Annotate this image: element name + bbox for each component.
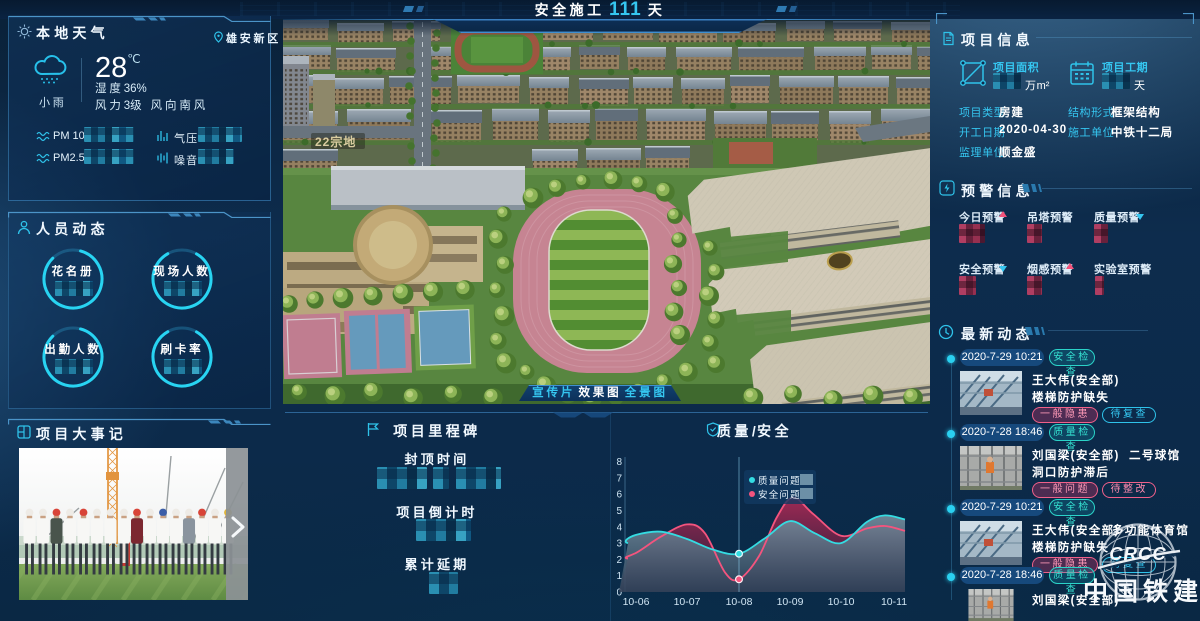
- svg-text:10-08: 10-08: [726, 596, 753, 608]
- svg-text:2: 2: [617, 555, 622, 566]
- svg-text:4: 4: [617, 522, 622, 533]
- svg-text:3: 3: [617, 539, 622, 550]
- svg-text:10-07: 10-07: [674, 596, 701, 608]
- svg-text:8: 8: [617, 457, 622, 468]
- svg-text:6: 6: [617, 490, 622, 501]
- svg-text:10-11: 10-11: [881, 596, 907, 608]
- svg-text:质量问题: 质量问题: [758, 475, 801, 487]
- svg-text:安全问题: 安全问题: [758, 489, 801, 501]
- svg-text:5: 5: [617, 506, 622, 517]
- svg-text:10-06: 10-06: [623, 596, 650, 608]
- svg-text:10-10: 10-10: [828, 596, 855, 608]
- svg-text:中国铁建: 中国铁建: [1083, 578, 1200, 606]
- svg-text:7: 7: [617, 473, 622, 484]
- svg-text:10-09: 10-09: [777, 596, 804, 608]
